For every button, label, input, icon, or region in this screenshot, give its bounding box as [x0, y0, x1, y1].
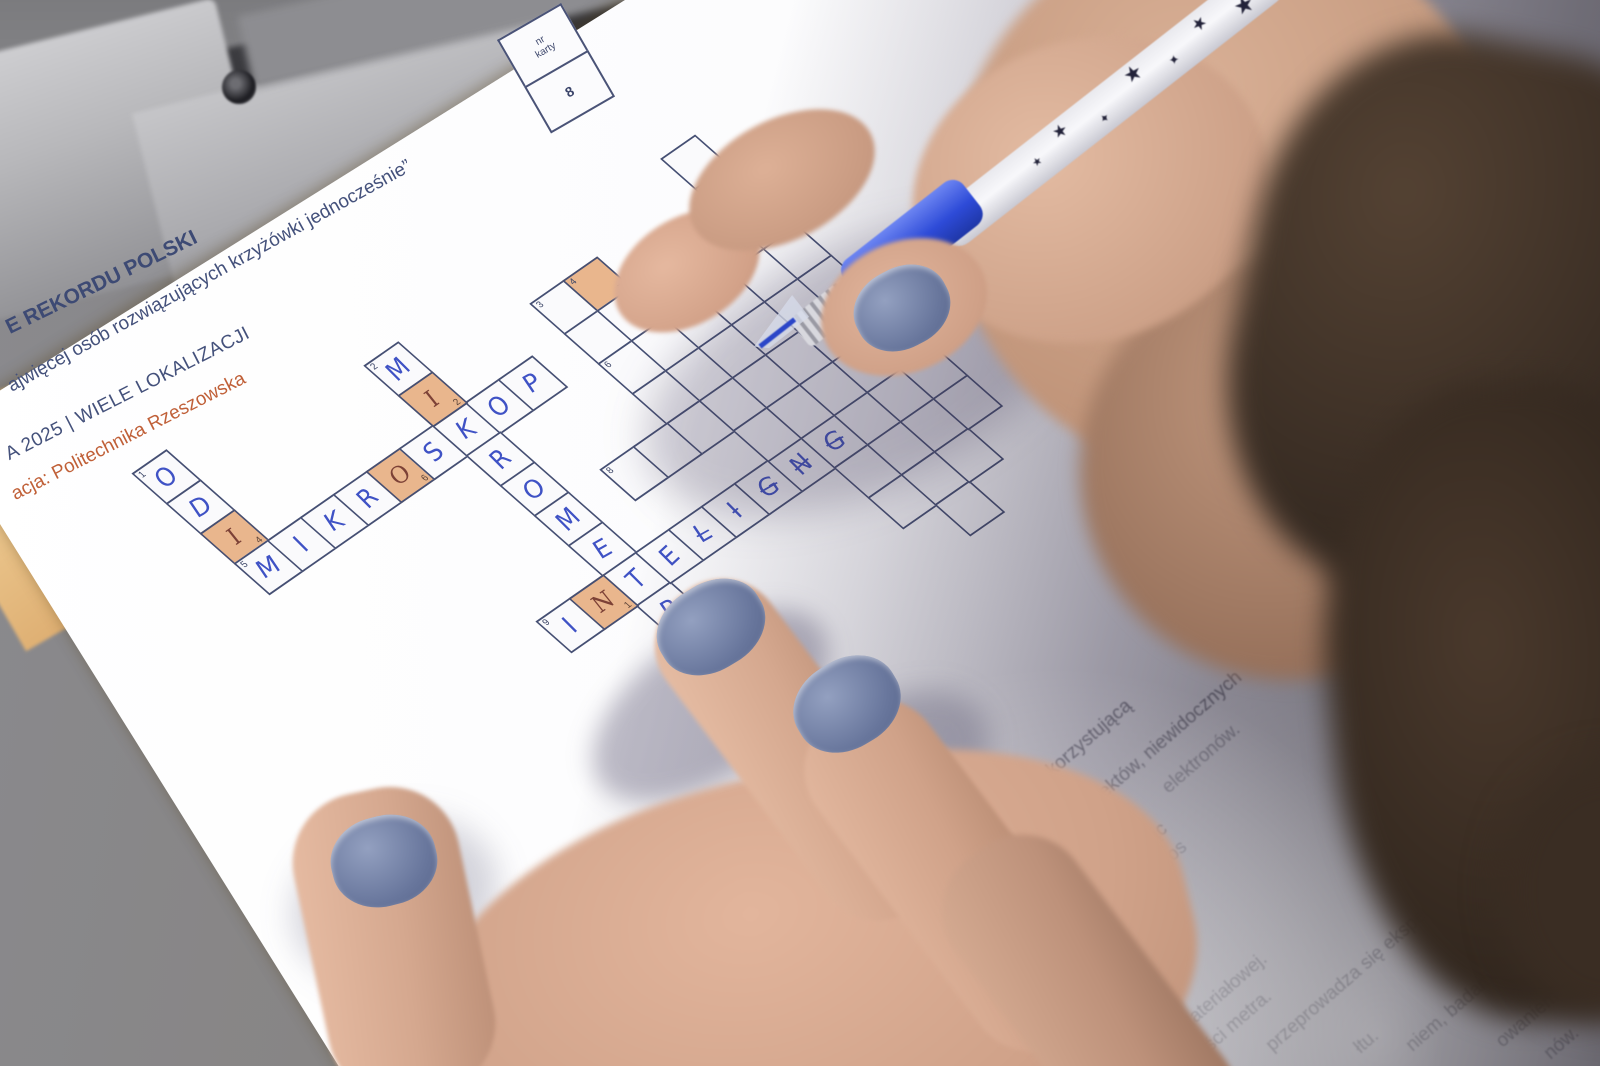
handwritten-letter: M [380, 355, 417, 384]
password-index: 2 [451, 397, 463, 407]
handwritten-letter: P [517, 370, 548, 396]
printed-letter: I [418, 387, 447, 411]
handwritten-letter: E [587, 536, 619, 562]
star-icon: ★ [1188, 13, 1210, 35]
star-icon: ✦ [1168, 53, 1181, 67]
handwritten-letter: S [417, 439, 450, 465]
printed-letter: I [220, 525, 249, 549]
star-icon: ✦ [1097, 111, 1113, 126]
star-icon: ★ [1031, 155, 1046, 170]
handwritten-letter: M [250, 553, 287, 582]
handwritten-letter: D [183, 493, 218, 521]
handwritten-letter: O [517, 475, 552, 503]
handwritten-letter: I [288, 534, 315, 555]
handwritten-letter: G [817, 427, 852, 455]
star-icon: ★ [1050, 121, 1070, 142]
screw-icon [222, 70, 256, 104]
handwritten-letter: I [722, 500, 749, 521]
printed-letter: O [382, 461, 418, 490]
handwritten-letter: T [620, 566, 653, 592]
handwritten-letter: M [550, 505, 587, 534]
printed-letter: N [585, 587, 622, 617]
handwritten-letter: N [784, 451, 819, 479]
handwritten-letter: R [483, 446, 517, 473]
handwritten-letter: O [482, 392, 518, 420]
card-number-value: 8 [562, 83, 577, 101]
handwritten-letter: R [351, 485, 385, 512]
password-index: 1 [622, 600, 634, 610]
star-icon: ★ [1120, 60, 1146, 87]
handwritten-letter: I [557, 615, 584, 636]
handwritten-letter: G [751, 473, 786, 501]
photo-scene: E REKORDU POLSKI ajwięcej osób rozwiązuj… [0, 0, 1600, 1066]
handwritten-letter: L [687, 521, 717, 547]
star-icon: ★ [1230, 0, 1258, 20]
handwritten-letter: K [450, 416, 482, 443]
clue-number: 8 [604, 466, 616, 476]
clue-number: 3 [534, 300, 546, 310]
clue-number: 6 [602, 360, 614, 370]
handwritten-letter: O [149, 463, 185, 491]
handwritten-letter: K [318, 508, 350, 535]
clue-number: 9 [540, 618, 552, 628]
clue-number: 4 [567, 277, 579, 287]
handwritten-letter: E [653, 543, 686, 569]
